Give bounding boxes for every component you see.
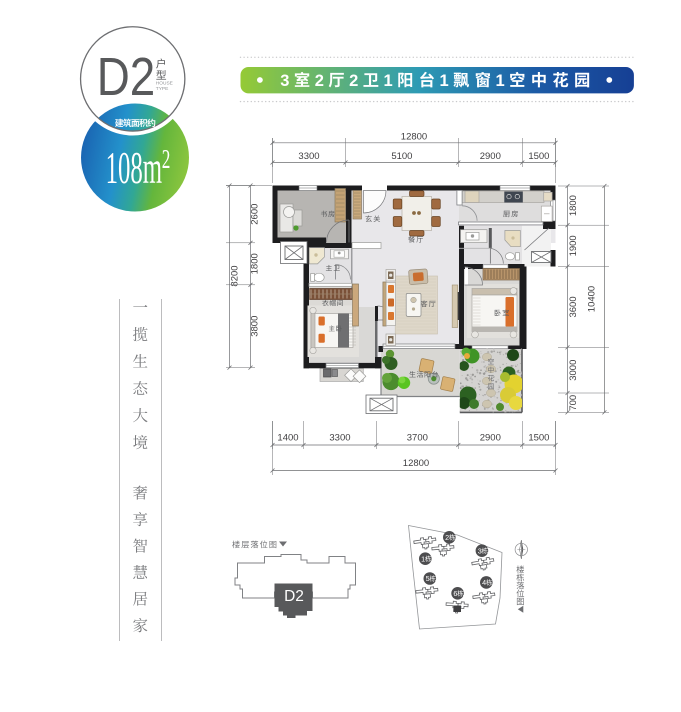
svg-text:3800: 3800: [250, 316, 261, 337]
svg-text:5: 5: [426, 574, 430, 583]
svg-text:HOUSE: HOUSE: [156, 81, 173, 87]
svg-text:1: 1: [440, 72, 449, 90]
svg-text:5100: 5100: [391, 151, 412, 162]
svg-text:6: 6: [453, 589, 457, 598]
svg-text:D2: D2: [284, 588, 304, 605]
svg-text:1: 1: [421, 554, 425, 563]
svg-text:2600: 2600: [250, 204, 261, 225]
svg-text:2900: 2900: [480, 433, 501, 444]
svg-text:12800: 12800: [403, 458, 429, 469]
svg-text:108m: 108m: [106, 143, 163, 193]
svg-text:3: 3: [478, 546, 482, 555]
svg-text:1900: 1900: [568, 235, 579, 256]
svg-text:2900: 2900: [480, 151, 501, 162]
svg-text:1500: 1500: [528, 433, 549, 444]
svg-text:8200: 8200: [230, 265, 241, 286]
svg-text:700: 700: [568, 395, 579, 411]
svg-text:3000: 3000: [568, 360, 579, 381]
svg-text:3: 3: [280, 72, 289, 90]
svg-text:1: 1: [496, 72, 505, 90]
svg-text:2: 2: [162, 144, 171, 174]
svg-text:1800: 1800: [250, 253, 261, 274]
svg-text:10400: 10400: [587, 286, 598, 312]
svg-text:3300: 3300: [298, 151, 319, 162]
svg-text:D2: D2: [97, 47, 156, 107]
svg-text:2: 2: [349, 72, 358, 90]
svg-text:2: 2: [445, 533, 449, 542]
svg-text:1800: 1800: [568, 195, 579, 216]
svg-text:3600: 3600: [568, 296, 579, 317]
svg-text:1500: 1500: [528, 151, 549, 162]
svg-text:1400: 1400: [277, 433, 298, 444]
svg-text:1: 1: [384, 72, 393, 90]
svg-text:2: 2: [315, 72, 324, 90]
svg-text:12800: 12800: [401, 132, 427, 143]
svg-text:3700: 3700: [407, 433, 428, 444]
svg-text:4: 4: [482, 578, 486, 587]
svg-text:3300: 3300: [329, 433, 350, 444]
svg-text:TYPE: TYPE: [156, 86, 169, 92]
